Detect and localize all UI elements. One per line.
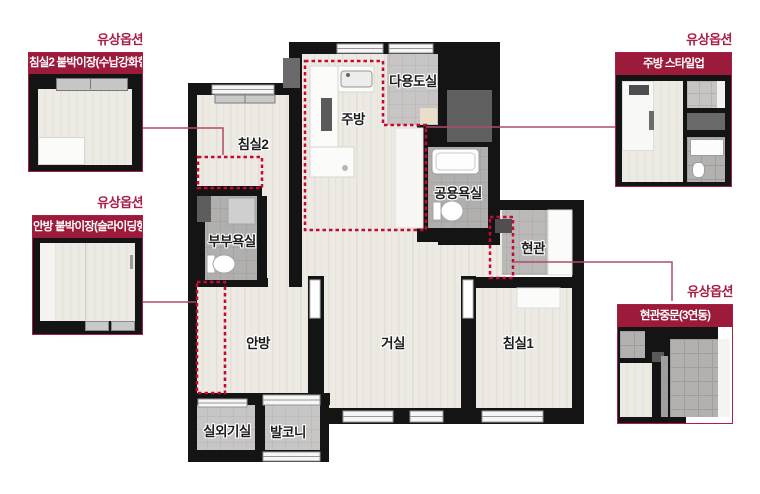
door-leaf-bedroom1 [463,280,473,318]
floorplan-page: 침실2 주방 다용도실 공용욕실 현관 부부욕실 안방 거실 침실1 실외기실 … [0,0,760,494]
paid-option-tag: 유상옵션 [28,29,143,48]
paid-option-tag: 유상옵션 [32,192,143,211]
thumb-shaft [687,113,725,131]
callout-kitchen-styleup: 유상옵션 주방 스타일업 [615,29,732,187]
room-label-bedroom2: 침실2 [238,133,269,153]
duct-shaft [447,90,492,142]
utility-mat [420,108,437,124]
thumb-window-sill [111,321,135,332]
entrance-door [495,219,512,233]
thumb-closet-handle [130,255,133,268]
paid-option-tag: 유상옵션 [615,29,732,48]
room-label-entrance: 현관 [521,237,545,257]
room-label-living: 거실 [381,332,405,352]
thumb-utility [687,81,717,109]
callout-master-closet: 유상옵션 안방 붙박이장(슬라이딩형) [32,192,143,335]
kitchen-sink [341,71,372,87]
room-label-kitchen: 주방 [341,108,365,128]
paid-option-tag: 유상옵션 [617,281,733,300]
callout-bedroom2-closet: 유상옵션 침실2 붙박이장(수납강화형) [28,29,143,172]
thumb-cooktop [649,111,654,131]
thumb-sink [629,85,650,95]
room-label-master-bedroom: 안방 [246,332,270,352]
thumb-toilet [692,162,706,178]
toilet-master [213,255,235,273]
callout-thumb-entrance-door [618,327,732,423]
callout-thumb-kitchen-styleup [616,75,731,186]
thumb-entrance-tile [670,339,718,418]
callout-thumb-bedroom2-closet [29,74,142,171]
cooktop [321,98,332,131]
callout-entrance-door: 유상옵션 현관중문(3연동) [617,281,733,424]
thumb-shoe-cabinet [718,339,729,418]
room-label-outdoor-unit: 실외기실 [203,420,251,440]
callout-title-master-closet: 안방 붙박이장(슬라이딩형) [33,216,142,238]
thumb-bath-tile [620,331,645,358]
storage-cabinet [517,288,560,308]
room-label-common-bath: 공용욕실 [434,182,482,202]
thumb-closet [56,78,128,91]
thumb-bathtub [690,139,724,155]
callout-thumb-master-closet [33,238,142,334]
room-label-master-bath: 부부욕실 [208,230,256,250]
callout-title-kitchen-styleup: 주방 스타일업 [616,53,731,75]
bedroom2-closet-rail [215,95,275,103]
room-label-balcony: 발코니 [270,421,306,441]
bath-sink [228,198,255,224]
callout-title-bedroom2-closet: 침실2 붙박이장(수납강화형) [29,53,142,74]
shoe-cabinet [548,210,572,275]
kitchen-counter [310,147,354,177]
thumb-door-track [661,356,668,417]
door-leaf-master [310,280,320,318]
room-label-utility: 다용도실 [389,70,437,90]
room-label-bedroom1: 침실1 [503,332,534,352]
duct-shaft-kitchen [283,58,300,88]
thumb-window-sill [85,321,109,332]
callout-title-entrance-door: 현관중문(3연동) [618,305,732,327]
tall-cabinet [395,128,423,228]
duct-shaft-bath [197,196,211,222]
thumb-hall-floor [620,363,652,417]
thumb-bed [38,137,85,165]
toilet [441,201,463,221]
